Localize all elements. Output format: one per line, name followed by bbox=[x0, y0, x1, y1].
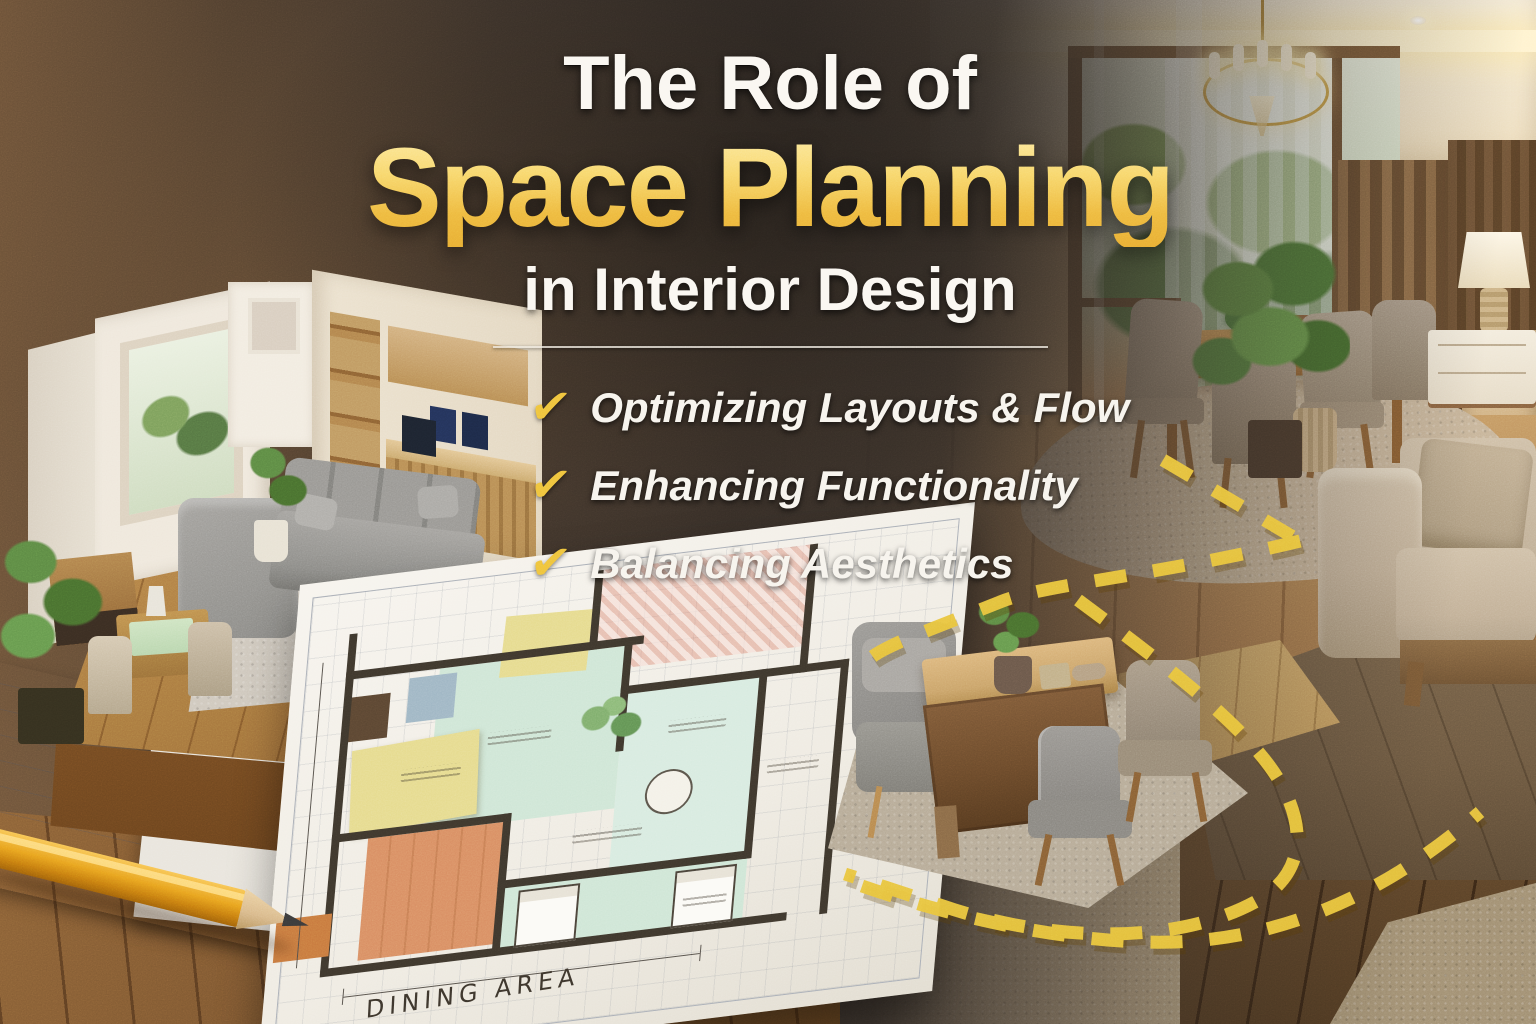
carpet-corner bbox=[1330, 860, 1536, 1024]
recessed-light bbox=[1410, 16, 1426, 25]
checklist-item-label: Optimizing Layouts & Flow bbox=[590, 384, 1129, 432]
checklist-row: ✔ Enhancing Functionality bbox=[530, 462, 1078, 510]
desk-plant-foliage bbox=[962, 582, 1054, 668]
plan-bed-symbol bbox=[514, 883, 581, 948]
wall-speaker bbox=[1468, 336, 1512, 364]
light-wood-mat bbox=[1040, 640, 1340, 790]
sofa-leg bbox=[1404, 661, 1425, 706]
check-icon: ✔ bbox=[527, 540, 574, 588]
wall-niche bbox=[1462, 330, 1536, 560]
side-chair-back bbox=[1126, 660, 1200, 752]
side-chair-seat bbox=[1118, 740, 1212, 776]
cutaway-wall-left-return bbox=[28, 330, 106, 649]
check-icon: ✔ bbox=[527, 384, 574, 432]
window-mullion bbox=[1332, 50, 1342, 434]
mini-chair bbox=[88, 636, 132, 714]
plan-plant-drawing bbox=[565, 684, 660, 762]
poster-canvas: DINING AREA bbox=[0, 0, 1536, 1024]
mini-table-lamp bbox=[146, 586, 166, 616]
mini-table-glass-top bbox=[129, 618, 195, 656]
plant-planter bbox=[18, 688, 84, 744]
curtain-panel bbox=[1338, 160, 1454, 760]
table-lamp-base bbox=[1480, 288, 1508, 332]
plan-room-blue bbox=[406, 672, 458, 723]
check-icon: ✔ bbox=[527, 462, 574, 510]
title-line-3: in Interior Design bbox=[240, 255, 1300, 324]
tv-console bbox=[48, 552, 141, 646]
table-lamp-shade bbox=[1458, 232, 1530, 288]
mini-dining-table bbox=[116, 609, 212, 679]
chandelier-bulb bbox=[1305, 52, 1316, 79]
pencil-graphite bbox=[282, 913, 311, 933]
sofa-back bbox=[1400, 438, 1536, 564]
checklist: ✔ Optimizing Layouts & Flow ✔ Enhancing … bbox=[240, 384, 1300, 588]
plant-foliage bbox=[0, 512, 126, 712]
sofa-armrest bbox=[1318, 468, 1422, 658]
plan-room-peach bbox=[357, 822, 505, 961]
table-leg bbox=[1392, 368, 1402, 463]
headline-block: The Role of Space Planning in Interior D… bbox=[240, 40, 1300, 588]
side-chair-back bbox=[1038, 726, 1120, 822]
title-divider bbox=[493, 346, 1048, 348]
sideboard-drawer-line bbox=[1438, 372, 1526, 374]
checklist-item-label: Balancing Aesthetics bbox=[590, 540, 1013, 588]
dining-chair-seat bbox=[1300, 402, 1384, 428]
desk-item-box bbox=[1039, 662, 1072, 689]
title-line-2: Space Planning bbox=[240, 129, 1300, 247]
side-chair-seat bbox=[1028, 800, 1132, 838]
checklist-row: ✔ Optimizing Layouts & Flow bbox=[530, 384, 1129, 432]
sideboard bbox=[1428, 330, 1536, 408]
cutaway-window bbox=[120, 317, 243, 526]
sofa-seat-cushion bbox=[1396, 548, 1536, 644]
sofa-base bbox=[1400, 640, 1536, 684]
dark-wood-planks bbox=[1000, 690, 1536, 1024]
wood-panel-wall bbox=[1448, 140, 1536, 760]
checklist-item-label: Enhancing Functionality bbox=[590, 462, 1078, 510]
sofa-floor-rug bbox=[1180, 620, 1536, 880]
desk-item-bowl bbox=[1071, 662, 1107, 682]
sideboard-drawer-line bbox=[1438, 344, 1526, 346]
dining-chair bbox=[1372, 300, 1436, 400]
desk-plant-pot bbox=[994, 656, 1032, 694]
title-line-1: The Role of bbox=[240, 40, 1300, 127]
dining-chair bbox=[1298, 309, 1381, 422]
sofa-pillow bbox=[1410, 438, 1534, 559]
checklist-row: ✔ Balancing Aesthetics bbox=[530, 540, 1013, 588]
mini-chair bbox=[188, 622, 232, 696]
